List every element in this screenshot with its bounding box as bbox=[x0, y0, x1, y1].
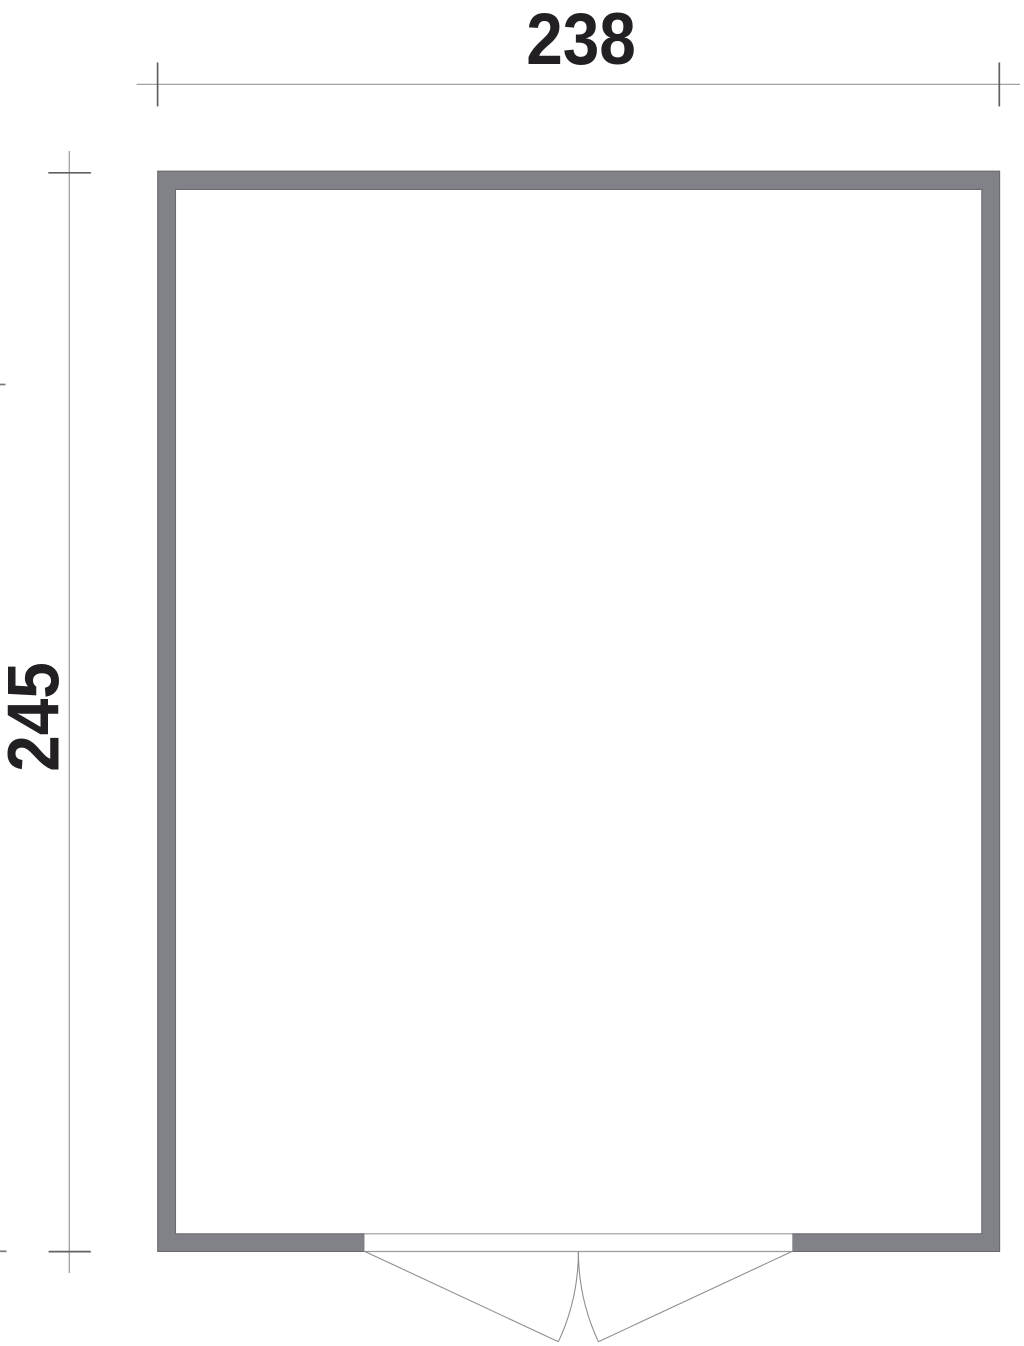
svg-text:245: 245 bbox=[0, 662, 74, 772]
svg-text:238: 238 bbox=[526, 0, 636, 80]
